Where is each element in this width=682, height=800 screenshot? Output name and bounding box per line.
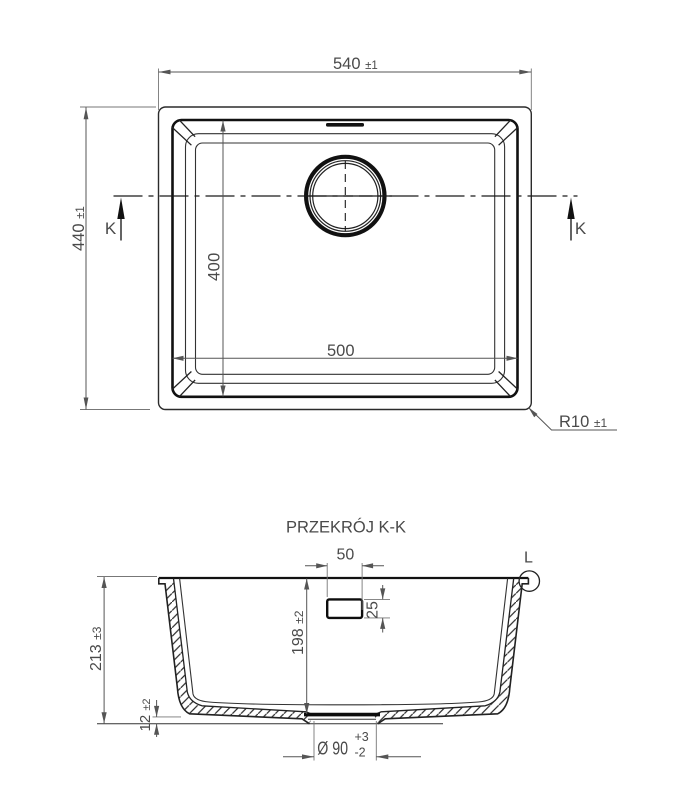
svg-text:-2: -2 [355, 746, 366, 760]
svg-text:213 ±3: 213 ±3 [88, 626, 105, 671]
svg-text:K: K [105, 219, 117, 238]
svg-text:500: 500 [327, 342, 355, 360]
svg-text:400: 400 [206, 252, 224, 281]
svg-text:+3: +3 [355, 730, 369, 744]
svg-text:50: 50 [337, 547, 355, 564]
svg-text:PRZEKRÓJ K-K: PRZEKRÓJ K-K [286, 518, 406, 537]
svg-text:L: L [524, 550, 533, 567]
svg-text:K: K [575, 219, 587, 238]
svg-text:R10 ±1: R10 ±1 [559, 413, 607, 431]
svg-text:25: 25 [365, 601, 382, 619]
svg-text:Ø 90: Ø 90 [317, 739, 348, 759]
svg-text:540 ±1: 540 ±1 [333, 55, 378, 73]
svg-text:198 ±2: 198 ±2 [290, 610, 307, 655]
svg-text:12 ±2: 12 ±2 [137, 698, 154, 731]
svg-text:440 ±1: 440 ±1 [70, 206, 88, 251]
